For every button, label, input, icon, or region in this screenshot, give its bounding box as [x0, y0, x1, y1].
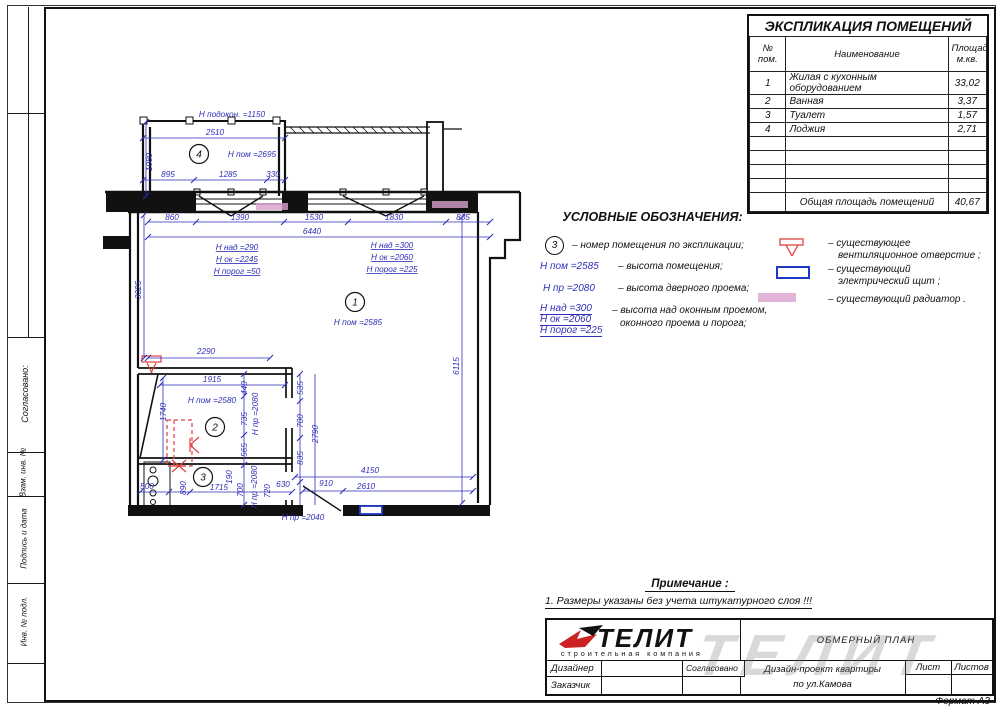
dimension-label: H подокон. =1150 [199, 110, 266, 119]
explication-empty-row [750, 137, 987, 151]
empty-cell [682, 677, 741, 694]
explication-header-row: №пом. Наименование Площадьм.кв. [750, 37, 987, 72]
approved-label: Согласовано [682, 660, 745, 677]
dimension-label: 2510 [205, 128, 225, 137]
total-value: 40,67 [948, 193, 987, 212]
title-block: ТЕЛИТ строительная компания ОБМЕРНЫЙ ПЛА… [545, 618, 994, 696]
legend-item-text: – номер помещения по экспликации; [572, 240, 744, 251]
legend-term: H порог =225 [540, 325, 602, 337]
role-customer: Заказчик [547, 677, 602, 694]
explication-table: ЭКСПЛИКАЦИЯ ПОМЕЩЕНИЙ №пом. Наименование… [747, 14, 989, 214]
dimension-label: 1080 [145, 152, 154, 171]
legend-item-text: – существующее [828, 238, 911, 249]
format-label: Формат А3 [905, 696, 990, 707]
logo-subtitle: строительная компания [547, 649, 740, 658]
dimension-label: H пом =2580 [188, 396, 237, 405]
explication-cell-name: Туалет [786, 109, 948, 123]
dimension-label: 860 [165, 213, 179, 222]
note-title: Примечание : [645, 578, 734, 592]
dimension-label: 890 [179, 481, 188, 495]
dimension-label: 535 [296, 381, 305, 395]
svg-text:ТЕЛИТ: ТЕЛИТ [597, 623, 693, 652]
project-name: Дизайн-проект квартиры по ул.Камова [740, 660, 906, 694]
total-label: Общая площадь помещений [786, 193, 948, 212]
dimension-label: 1390 [231, 213, 250, 222]
note-item: 1. Размеры указаны без учета штукатурног… [545, 595, 812, 609]
signature-cell [597, 677, 683, 694]
drawing-sheet: Согласовано: Взам. инв. № Подпись и дата… [0, 0, 1000, 707]
explication-cell-num: 4 [750, 123, 786, 137]
dimension-label: 2610 [356, 482, 376, 491]
dimension-label: 500 [140, 482, 154, 491]
dimension-label: 1830 [385, 213, 404, 222]
signature-cell [597, 660, 683, 677]
col-header-num: №пом. [750, 37, 786, 72]
explication-cell-area: 33,02 [948, 72, 987, 95]
dimension-label: H пр =2080 [251, 392, 260, 435]
sheet-label: Лист [905, 660, 952, 675]
legend-item-text: – существующий радиатор . [828, 294, 966, 305]
dimension-label: 735 [240, 412, 249, 426]
dimension-label: H пом =2695 [228, 150, 277, 159]
explication-row: 1Жилая с кухонным оборудованием33,02 [750, 72, 987, 95]
dimension-label: 1285 [219, 170, 238, 179]
dimension-label: 190 [225, 470, 234, 484]
dimension-label: 440 [240, 381, 249, 395]
explication-empty-row [750, 179, 987, 193]
dimension-label: 835 [456, 213, 470, 222]
dimension-label: 700 [296, 414, 305, 428]
dimension-label: H пр =2040 [282, 513, 325, 522]
legend-item-text: – высота над оконным проемом, [612, 305, 767, 316]
dimension-label: 1740 [159, 402, 168, 421]
legend-item-text: – существующий [828, 264, 911, 275]
logo-cell: ТЕЛИТ строительная компания [547, 620, 741, 661]
dimension-label: 630 [276, 480, 290, 489]
exterior-walls [103, 192, 520, 516]
dimension-label: 700 [236, 483, 245, 497]
explication-cell-name: Жилая с кухонным оборудованием [786, 72, 948, 95]
dimension-label: 1530 [305, 213, 324, 222]
legend-term: H пр =2080 [543, 283, 595, 294]
explication-cell-num: 3 [750, 109, 786, 123]
glazing-posts [140, 117, 427, 195]
sheet-value-cell [905, 675, 952, 694]
dimension-label: 910 [319, 479, 333, 488]
plan-labels: H подокон. =115025104H пом =269510808951… [134, 110, 470, 522]
dimension-label: H порог =225 [366, 265, 418, 274]
explication-cell-name: Ванная [786, 95, 948, 109]
dimension-label: 330 [266, 170, 280, 179]
col-header-area: Площадьм.кв. [948, 37, 987, 72]
explication-row: 4Лоджия2,71 [750, 123, 987, 137]
dimension-label: H пом =2585 [334, 318, 383, 327]
vent-icon [778, 238, 806, 258]
explication-total-row: Общая площадь помещений 40,67 [750, 193, 987, 212]
room-number: 2 [211, 423, 218, 434]
explication-empty-row [750, 165, 987, 179]
dimension-label: H ок =2245 [216, 255, 258, 264]
dimension-label: H над =300 [371, 241, 414, 250]
electric-panel-icon [776, 266, 810, 279]
legend-item-text: вентиляционное отверстие ; [838, 250, 981, 261]
dimension-label: 4150 [361, 466, 380, 475]
dimension-label: 835 [296, 451, 305, 465]
role-designer: Дизайнер [547, 660, 602, 677]
room-number: 4 [196, 150, 202, 161]
room-number: 1 [352, 298, 358, 309]
dimension-label: 895 [161, 170, 175, 179]
explication-cell-area: 3,37 [948, 95, 987, 109]
legend-item-text: – высота помещения; [618, 261, 723, 272]
room-number: 3 [200, 473, 206, 484]
dimension-label: 3325 [134, 280, 143, 299]
explication-row: 3Туалет1,57 [750, 109, 987, 123]
legend-item-text: оконного проема и порога; [620, 318, 747, 329]
sheets-label: Листов [951, 660, 992, 675]
dimension-label: 565 [240, 443, 249, 457]
dimension-label: 2790 [311, 424, 320, 444]
explication-cell-area: 1,57 [948, 109, 987, 123]
legend-item-text: – высота дверного проема; [618, 283, 749, 294]
electric-panel-symbol [360, 506, 382, 514]
dimension-label: H над =290 [216, 243, 259, 252]
dimension-label: 6440 [303, 227, 322, 236]
company-logo-icon: ТЕЛИТ [551, 622, 741, 652]
legend-term: H пом =2585 [540, 261, 599, 272]
radiator-icon [758, 293, 796, 302]
dimension-label: H порог =50 [214, 267, 261, 276]
dimension-label: H ок =2060 [371, 253, 413, 262]
explication-empty-row [750, 151, 987, 165]
explication-cell-area: 2,71 [948, 123, 987, 137]
legend-item-text: электрический щит ; [838, 276, 940, 287]
dimension-label: 1915 [203, 375, 222, 384]
explication-title: ЭКСПЛИКАЦИЯ ПОМЕЩЕНИЙ [749, 16, 987, 36]
legend-title: УСЛОВНЫЕ ОБОЗНАЧЕНИЯ: [545, 210, 760, 224]
doc-title: ОБМЕРНЫЙ ПЛАН [740, 620, 992, 661]
room-number-symbol: 3 [545, 236, 564, 255]
dimension-label: H пр =2080 [250, 465, 259, 508]
explication-row: 2Ванная3,37 [750, 95, 987, 109]
dimension-label: 6115 [452, 357, 461, 375]
explication-cell-num: 2 [750, 95, 786, 109]
explication-cell-name: Лоджия [786, 123, 948, 137]
dimension-label: 720 [263, 484, 272, 498]
col-header-name: Наименование [786, 37, 948, 72]
dimension-label: 2290 [196, 347, 216, 356]
explication-cell-num: 1 [750, 72, 786, 95]
